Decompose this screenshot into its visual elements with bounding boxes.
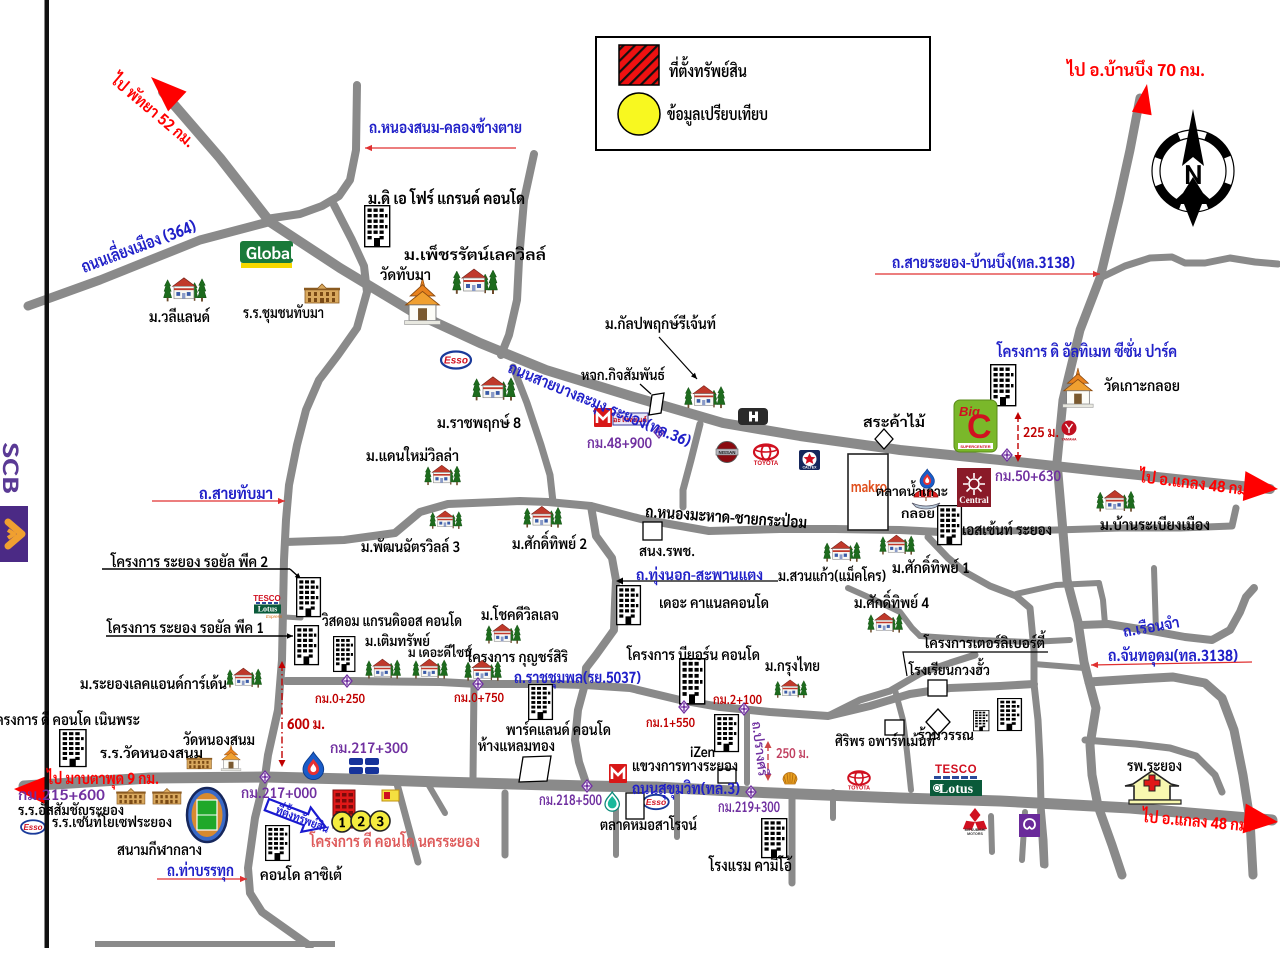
svg-text:TESCO: TESCO xyxy=(253,594,281,603)
svg-text:Esso: Esso xyxy=(646,797,666,807)
svg-text:Express: Express xyxy=(266,614,283,619)
svg-text:TESCO: TESCO xyxy=(935,764,977,776)
svg-text:TOYOTA: TOYOTA xyxy=(848,786,870,792)
svg-text:Lotus: Lotus xyxy=(258,605,278,614)
svg-text:NISSAN: NISSAN xyxy=(718,450,735,455)
svg-text:TOYOTA: TOYOTA xyxy=(754,461,779,467)
svg-text:Lotus: Lotus xyxy=(939,782,974,797)
svg-text:YAMAHA: YAMAHA xyxy=(1061,438,1077,442)
svg-text:Central: Central xyxy=(959,495,989,505)
svg-text:C: C xyxy=(967,408,992,446)
svg-text:CALTEX: CALTEX xyxy=(802,466,817,470)
svg-text:Esso: Esso xyxy=(444,356,468,367)
svg-text:MOTORS: MOTORS xyxy=(967,832,983,836)
svg-text:SUPERCENTER: SUPERCENTER xyxy=(960,444,990,449)
svg-text:Esso: Esso xyxy=(23,823,42,832)
